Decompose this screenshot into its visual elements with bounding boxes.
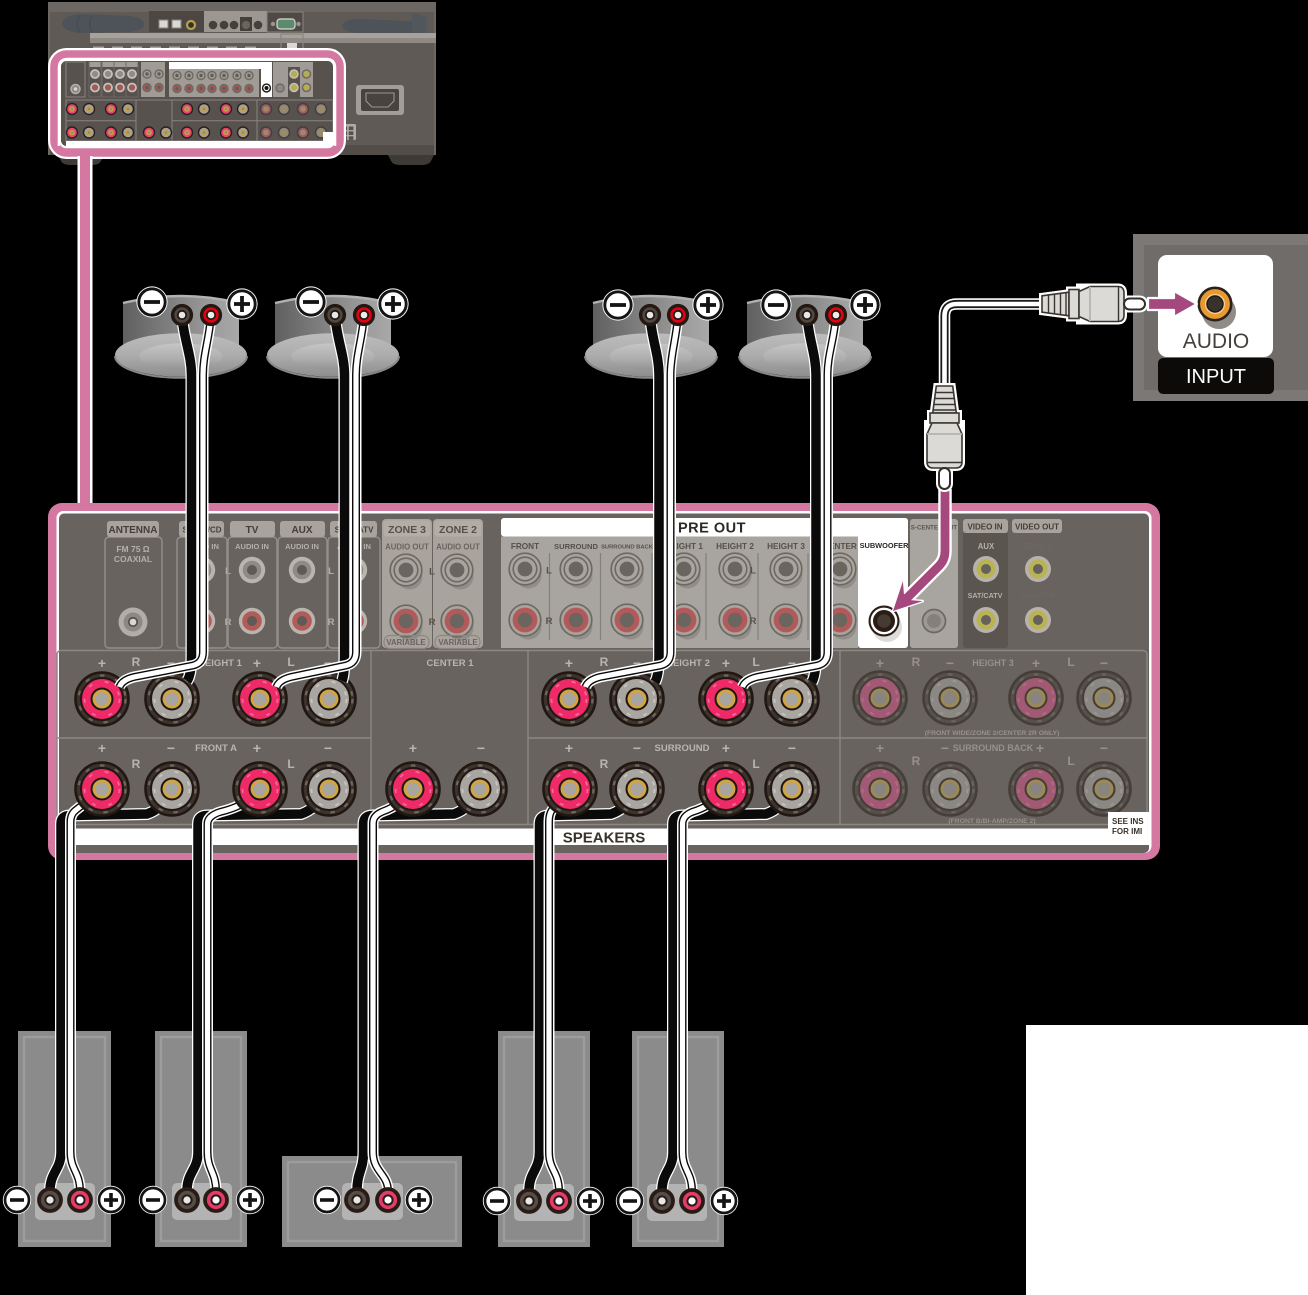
svg-text:+: + xyxy=(565,655,573,671)
svg-text:FM 75 Ω: FM 75 Ω xyxy=(116,544,149,554)
svg-text:+: + xyxy=(565,740,573,756)
svg-text:+: + xyxy=(409,740,417,756)
svg-text:L: L xyxy=(750,566,756,577)
svg-text:R: R xyxy=(546,616,553,627)
svg-text:−: − xyxy=(941,740,949,756)
svg-text:HEIGHT 3: HEIGHT 3 xyxy=(767,542,805,551)
svg-text:R: R xyxy=(600,757,609,771)
svg-text:−: − xyxy=(788,740,796,756)
svg-text:L: L xyxy=(546,566,552,577)
svg-text:+: + xyxy=(1032,655,1040,671)
svg-text:VIDEO OUT: VIDEO OUT xyxy=(1015,523,1059,532)
svg-text:SURROUND BACK: SURROUND BACK xyxy=(601,545,654,551)
svg-text:−: − xyxy=(946,655,954,671)
svg-text:PRE OUT: PRE OUT xyxy=(678,521,746,537)
svg-text:−: − xyxy=(1100,655,1108,671)
svg-text:R: R xyxy=(132,655,141,669)
svg-text:SAT/CATV: SAT/CATV xyxy=(968,591,1003,600)
svg-text:−: − xyxy=(1100,740,1108,756)
svg-text:+: + xyxy=(722,740,730,756)
svg-text:L: L xyxy=(752,757,759,771)
svg-text:R: R xyxy=(600,655,609,669)
svg-text:VARIABLE: VARIABLE xyxy=(438,638,477,647)
svg-text:−: − xyxy=(633,740,641,756)
svg-text:ZONE 3: ZONE 3 xyxy=(388,524,426,536)
svg-text:SURROUND: SURROUND xyxy=(554,542,598,551)
svg-text:R: R xyxy=(132,757,141,771)
svg-text:INPUT: INPUT xyxy=(1186,366,1246,388)
svg-text:L: L xyxy=(752,655,759,669)
svg-text:AUDIO OUT: AUDIO OUT xyxy=(385,543,429,552)
svg-text:L: L xyxy=(1067,655,1074,669)
svg-text:ZONE 2: ZONE 2 xyxy=(1024,542,1053,551)
svg-text:COAXIAL: COAXIAL xyxy=(114,554,152,564)
svg-text:SURROUND: SURROUND xyxy=(655,743,710,754)
svg-text:AUDIO OUT: AUDIO OUT xyxy=(436,543,480,552)
svg-text:−: − xyxy=(167,740,175,756)
svg-text:SPEAKERS: SPEAKERS xyxy=(563,830,646,847)
svg-text:TV: TV xyxy=(246,525,259,536)
svg-text:R: R xyxy=(429,617,436,628)
svg-text:HEIGHT 2: HEIGHT 2 xyxy=(716,542,754,551)
svg-text:ZONE 2: ZONE 2 xyxy=(439,524,477,536)
svg-text:+: + xyxy=(1036,740,1044,756)
svg-text:FRONT: FRONT xyxy=(511,542,539,551)
svg-text:L: L xyxy=(429,567,435,578)
svg-text:CENTER 1: CENTER 1 xyxy=(427,658,475,669)
svg-text:SUBWOOFER: SUBWOOFER xyxy=(860,541,910,550)
svg-text:−: − xyxy=(477,740,485,756)
svg-text:R: R xyxy=(328,617,335,628)
svg-text:+: + xyxy=(722,655,730,671)
svg-text:FRONT A: FRONT A xyxy=(195,743,237,754)
svg-text:+: + xyxy=(253,655,261,671)
svg-text:+: + xyxy=(253,740,261,756)
svg-text:AUX: AUX xyxy=(291,525,312,536)
svg-text:HEIGHT 3: HEIGHT 3 xyxy=(972,658,1014,668)
svg-text:+: + xyxy=(98,740,106,756)
svg-text:AUDIO IN: AUDIO IN xyxy=(285,542,319,551)
svg-text:−: − xyxy=(324,740,332,756)
svg-text:VIDEO IN: VIDEO IN xyxy=(967,523,1002,532)
svg-text:+: + xyxy=(876,740,884,756)
svg-text:AUDIO IN: AUDIO IN xyxy=(235,542,269,551)
svg-text:+: + xyxy=(98,655,106,671)
svg-text:(FRONT B/BI-AMP/ZONE 2): (FRONT B/BI-AMP/ZONE 2) xyxy=(948,818,1035,825)
svg-text:L: L xyxy=(328,566,334,577)
svg-text:SURROUND BACK: SURROUND BACK xyxy=(953,743,1034,753)
svg-text:+: + xyxy=(876,655,884,671)
svg-text:VARIABLE: VARIABLE xyxy=(386,638,425,647)
svg-text:AUDIO: AUDIO xyxy=(1183,330,1250,353)
svg-text:ANTENNA: ANTENNA xyxy=(109,525,158,536)
svg-text:AUX: AUX xyxy=(978,542,995,551)
svg-text:FOR IMI: FOR IMI xyxy=(1112,827,1142,836)
svg-text:L: L xyxy=(1067,754,1074,768)
svg-text:R: R xyxy=(750,616,757,627)
svg-text:R: R xyxy=(912,754,921,768)
svg-text:R: R xyxy=(912,655,921,669)
svg-text:L: L xyxy=(287,655,294,669)
svg-text:SEE INS: SEE INS xyxy=(1112,817,1144,826)
svg-text:L: L xyxy=(287,757,294,771)
svg-text:(FRONT WIDE/ZONE 2/CENTER 2R O: (FRONT WIDE/ZONE 2/CENTER 2R ONLY) xyxy=(925,730,1060,737)
svg-text:MONITOR: MONITOR xyxy=(1021,591,1056,600)
